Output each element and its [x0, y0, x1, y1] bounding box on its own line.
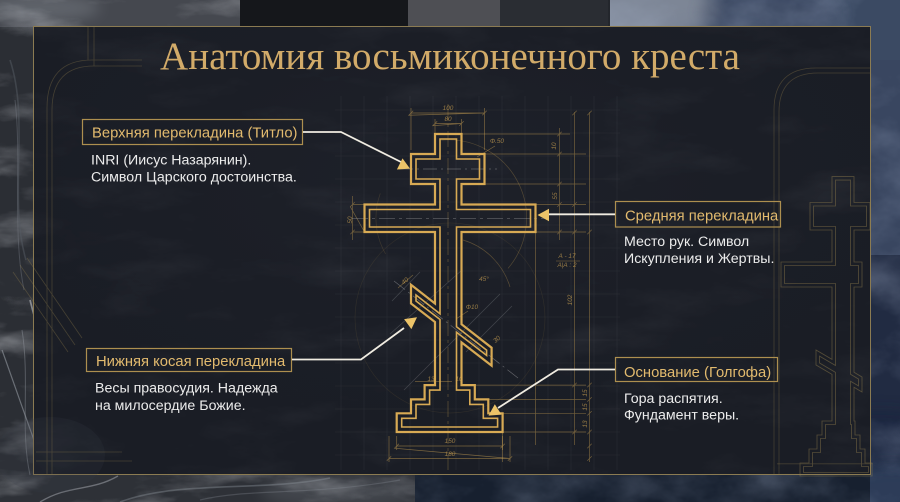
- svg-text:Искупления и Жертвы.: Искупления и Жертвы.: [624, 251, 774, 267]
- svg-text:Средняя перекладина: Средняя перекладина: [625, 209, 779, 225]
- svg-text:55: 55: [552, 192, 559, 200]
- svg-text:15: 15: [582, 389, 589, 397]
- svg-text:150: 150: [445, 438, 456, 445]
- svg-text:102: 102: [567, 294, 574, 305]
- svg-text:INRI (Иисус Назарянин).: INRI (Иисус Назарянин).: [91, 153, 251, 169]
- svg-text:180: 180: [445, 451, 456, 458]
- svg-text:15: 15: [582, 403, 589, 411]
- svg-text:А - 17: А - 17: [557, 253, 575, 260]
- svg-text:Верхняя перекладина (Титло): Верхняя перекладина (Титло): [92, 126, 298, 142]
- svg-text:А|А : 2: А|А : 2: [556, 262, 577, 269]
- svg-text:Символ Царского достоинства.: Символ Царского достоинства.: [91, 169, 297, 185]
- svg-text:Гора распятия.: Гора распятия.: [624, 391, 723, 407]
- svg-text:на милосердие Божие.: на милосердие Божие.: [95, 398, 246, 414]
- svg-text:Весы правосудия. Надежда: Весы правосудия. Надежда: [95, 381, 278, 397]
- svg-text:13: 13: [582, 420, 589, 428]
- svg-text:50: 50: [347, 216, 354, 224]
- svg-text:Ф.50: Ф.50: [490, 138, 504, 145]
- svg-text:13: 13: [427, 376, 435, 383]
- svg-text:Ф10: Ф10: [466, 304, 479, 311]
- svg-text:Нижняя косая перекладина: Нижняя косая перекладина: [96, 354, 286, 370]
- svg-text:Основание (Голгофа): Основание (Голгофа): [624, 365, 771, 381]
- svg-text:Анатомия восьмиконечного крест: Анатомия восьмиконечного креста: [160, 35, 740, 78]
- svg-text:Место рук. Символ: Место рук. Символ: [624, 234, 749, 250]
- svg-text:10: 10: [551, 142, 558, 150]
- svg-text:Фундамент веры.: Фундамент веры.: [624, 408, 739, 424]
- svg-text:45°: 45°: [479, 275, 489, 283]
